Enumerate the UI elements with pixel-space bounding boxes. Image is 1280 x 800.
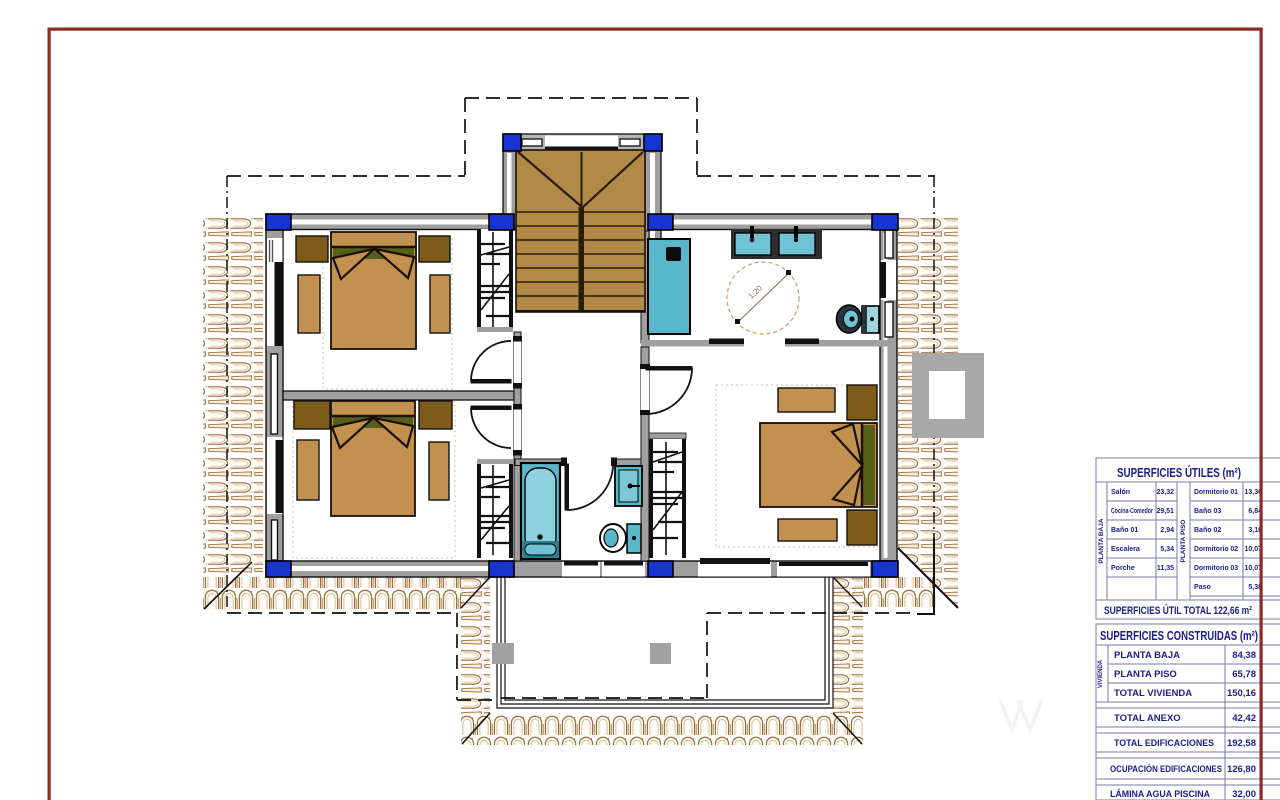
svg-text:Salón: Salón <box>1111 489 1130 496</box>
svg-text:11,35: 11,35 <box>1157 565 1174 572</box>
svg-text:192,58: 192,58 <box>1227 738 1256 749</box>
svg-text:29,51: 29,51 <box>1156 508 1174 515</box>
svg-text:Dormitorio 01: Dormitorio 01 <box>1194 489 1238 496</box>
svg-text:TOTAL ANEXO: TOTAL ANEXO <box>1114 713 1181 724</box>
svg-text:2,94: 2,94 <box>1160 527 1174 534</box>
svg-text:Paso: Paso <box>1194 584 1211 591</box>
svg-text:PLANTA PISO: PLANTA PISO <box>1114 669 1177 680</box>
svg-text:126,80: 126,80 <box>1227 764 1256 775</box>
svg-text:Baño 01: Baño 01 <box>1111 527 1138 534</box>
svg-text:65,78: 65,78 <box>1232 669 1256 680</box>
svg-text:PLANTA PISO: PLANTA PISO <box>1180 520 1187 563</box>
svg-text:Dormitorio 03: Dormitorio 03 <box>1194 565 1238 572</box>
svg-text:5,34: 5,34 <box>1160 546 1174 553</box>
svg-text:OCUPACIÓN EDIFICACIONES: OCUPACIÓN EDIFICACIONES <box>1110 763 1222 775</box>
svg-text:LÁMINA AGUA PISCINA: LÁMINA AGUA PISCINA <box>1110 789 1210 800</box>
svg-text:Porche: Porche <box>1111 565 1135 572</box>
svg-text:SUPERFICIES ÚTILES (m²): SUPERFICIES ÚTILES (m²) <box>1117 465 1241 480</box>
svg-text:Dormitorio 02: Dormitorio 02 <box>1194 546 1238 553</box>
svg-text:Baño 03: Baño 03 <box>1194 508 1221 515</box>
svg-text:PLANTA BAJA: PLANTA BAJA <box>1114 650 1180 661</box>
svg-text:32,00: 32,00 <box>1232 789 1256 800</box>
svg-text:150,16: 150,16 <box>1227 688 1256 699</box>
svg-text:TOTAL VIVIENDA: TOTAL VIVIENDA <box>1114 688 1192 699</box>
svg-text:42,42: 42,42 <box>1232 713 1256 724</box>
svg-text:VIVIENDA: VIVIENDA <box>1098 659 1104 688</box>
svg-text:10,07: 10,07 <box>1244 546 1262 553</box>
svg-text:Escalera: Escalera <box>1111 546 1140 553</box>
svg-text:13,30: 13,30 <box>1244 489 1262 496</box>
svg-text:SUPERFICIES CONSTRUIDAS (m²): SUPERFICIES CONSTRUIDAS (m²) <box>1100 629 1258 643</box>
svg-text:PLANTA BAJA: PLANTA BAJA <box>1098 518 1105 563</box>
svg-text:23,32: 23,32 <box>1156 489 1174 496</box>
svg-text:Cocina-Comedor: Cocina-Comedor <box>1111 508 1153 515</box>
svg-text:84,38: 84,38 <box>1232 650 1256 661</box>
svg-text:10,07: 10,07 <box>1244 565 1262 572</box>
svg-text:Baño 02: Baño 02 <box>1194 527 1221 534</box>
svg-text:SUPERFICIES ÚTIL TOTAL 122,66: SUPERFICIES ÚTIL TOTAL 122,66 m² <box>1104 604 1252 617</box>
svg-text:TOTAL EDIFICACIONES: TOTAL EDIFICACIONES <box>1114 738 1214 749</box>
